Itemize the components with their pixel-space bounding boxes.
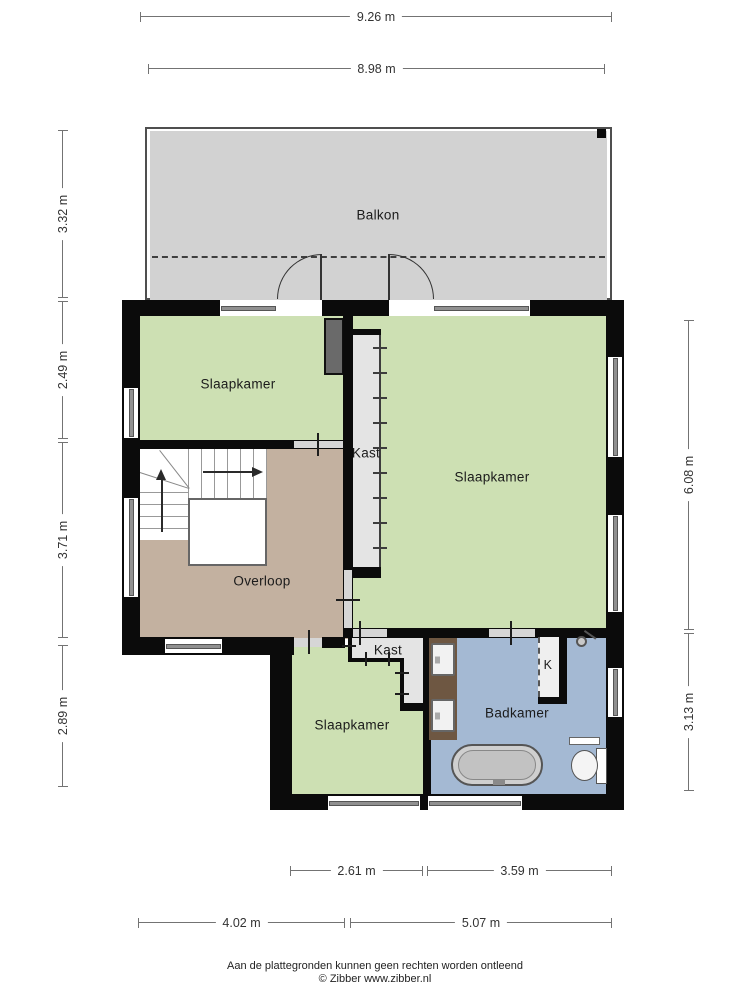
stairs-arrow-right-head xyxy=(252,467,263,477)
label-kast-small: K xyxy=(544,658,553,672)
dim-left-lower-label: 2.89 m xyxy=(56,690,70,742)
dim-top-inner-label: 8.98 m xyxy=(350,62,402,76)
shower-head-icon xyxy=(576,636,587,647)
toilet-shelf xyxy=(569,737,600,745)
stairs-left-flight xyxy=(138,492,188,540)
door-tick-badkamer xyxy=(510,621,512,645)
dim-bottom-inner-right-label: 3.59 m xyxy=(493,864,545,878)
window-overloop-bottom xyxy=(165,639,222,653)
label-badkamer: Badkamer xyxy=(485,706,549,721)
window-right-upper xyxy=(608,357,622,457)
wall-top xyxy=(122,300,624,316)
window-left-lower xyxy=(124,498,138,597)
kast-bottom-floor-lower xyxy=(402,660,423,706)
kast-bottom-tick-2 xyxy=(365,652,367,666)
window-top-right xyxy=(433,300,530,316)
bathtub-inner xyxy=(458,750,536,780)
dim-top-outer-label: 9.26 m xyxy=(350,10,402,24)
label-slaapkamer-right: Slaapkamer xyxy=(454,470,529,485)
window-right-bathroom xyxy=(608,668,622,717)
door-tick-kastB xyxy=(359,621,361,645)
dim-top-outer: 9.26 m xyxy=(140,16,612,17)
balkon-corner-post xyxy=(597,129,606,138)
dim-bottom-outer-left: 4.02 m xyxy=(138,922,345,923)
dim-bottom-outer-right-label: 5.07 m xyxy=(455,916,507,930)
window-right-middle xyxy=(608,515,622,612)
dim-bottom-inner-left-label: 2.61 m xyxy=(330,864,382,878)
label-kast-middle: Kast xyxy=(352,446,380,461)
door-tick-bedroomR xyxy=(336,599,360,601)
stairwell-void xyxy=(188,498,267,566)
window-bottom-bathroom xyxy=(428,796,522,810)
door-sill-badkamer xyxy=(489,629,535,637)
door-opening-right xyxy=(389,300,433,316)
dim-right-lower: 3.13 m xyxy=(688,633,689,791)
dim-left-balkon-label: 3.32 m xyxy=(56,188,70,240)
kast-small-wall-bottom xyxy=(538,697,567,704)
kast-bottom-wall-horiz xyxy=(348,658,404,662)
door-tick-bedroomTL xyxy=(317,433,319,456)
dim-bottom-inner-left: 2.61 m xyxy=(290,870,423,871)
window-top-left xyxy=(220,300,277,316)
dim-left-middle: 3.71 m xyxy=(62,442,63,638)
door-tick-bedroomB xyxy=(308,630,310,654)
dim-right-upper-label: 6.08 m xyxy=(682,449,696,501)
label-slaapkamer-bottom: Slaapkamer xyxy=(314,718,389,733)
dim-bottom-outer-left-label: 4.02 m xyxy=(215,916,267,930)
sink-top xyxy=(431,643,455,676)
label-slaapkamer-top-left: Slaapkamer xyxy=(200,377,275,392)
stairs-arrow-up-head xyxy=(156,469,166,480)
window-bottom-bedroom xyxy=(328,796,420,810)
kast-bottom-wall-cap xyxy=(400,703,431,711)
kast-small-wall-right xyxy=(559,633,567,703)
dim-bottom-inner-right: 3.59 m xyxy=(427,870,612,871)
window-left-upper xyxy=(124,388,138,438)
dim-left-upper-label: 2.49 m xyxy=(56,344,70,396)
dim-left-upper: 2.49 m xyxy=(62,301,63,439)
dim-bottom-outer-right: 5.07 m xyxy=(350,922,612,923)
label-kast-bottom: Kast xyxy=(374,643,402,658)
dim-left-balkon: 3.32 m xyxy=(62,130,63,298)
door-opening-left xyxy=(277,300,322,316)
duct xyxy=(324,318,344,375)
toilet-bowl xyxy=(571,750,598,781)
wall-left xyxy=(122,300,140,655)
footer-credit: © Zibber www.zibber.nl xyxy=(319,973,432,985)
footer-disclaimer: Aan de plattegronden kunnen geen rechten… xyxy=(227,960,523,972)
door-leaf-right xyxy=(388,254,390,300)
kast-bottom-wall-vert xyxy=(400,660,404,706)
dim-left-middle-label: 3.71 m xyxy=(56,514,70,566)
dim-top-inner: 8.98 m xyxy=(148,68,605,69)
sink-bottom xyxy=(431,699,455,732)
bathtub-faucet xyxy=(493,780,505,785)
wall-step-left xyxy=(270,637,292,810)
stairs-arrow-up-shaft xyxy=(161,480,163,532)
dim-left-lower: 2.89 m xyxy=(62,645,63,787)
stairs-arrow-right-shaft xyxy=(203,471,253,473)
dim-right-upper: 6.08 m xyxy=(688,320,689,630)
door-leaf-left xyxy=(320,254,322,300)
label-balkon: Balkon xyxy=(356,208,399,223)
label-overloop: Overloop xyxy=(233,574,290,589)
kast-bottom-tick-4 xyxy=(395,672,409,674)
floorplan-canvas: Balkon Slaapkamer Kast Slaapkamer Overlo… xyxy=(0,0,750,1000)
kast-bottom-tick-5 xyxy=(395,693,409,695)
dim-right-lower-label: 3.13 m xyxy=(682,686,696,738)
balkon-dashed-line xyxy=(152,256,605,258)
kast-bottom-tick-1 xyxy=(342,645,356,647)
